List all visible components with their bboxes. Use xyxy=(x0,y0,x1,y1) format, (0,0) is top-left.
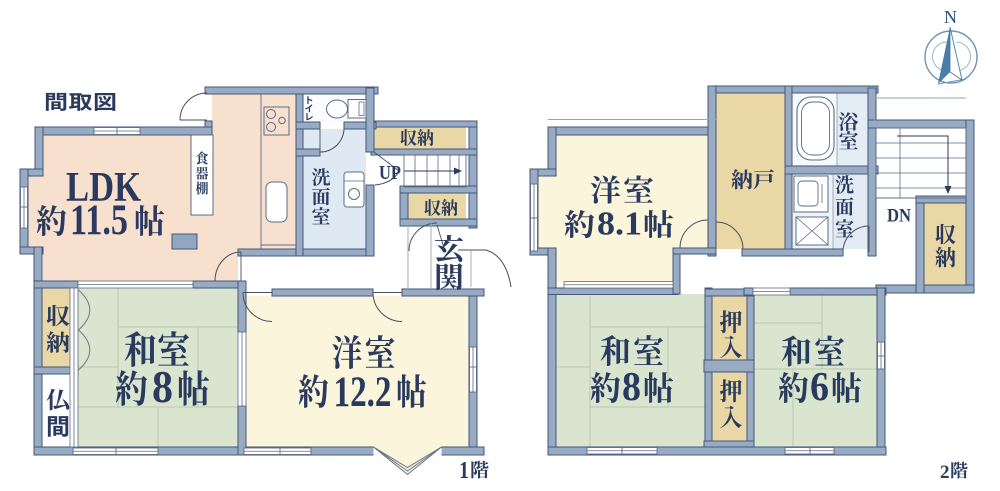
svg-text:N: N xyxy=(944,7,957,27)
svg-text:8: 8 xyxy=(622,363,641,409)
svg-text:12.2: 12.2 xyxy=(334,369,392,416)
svg-text:1: 1 xyxy=(459,458,469,484)
svg-text:8.1: 8.1 xyxy=(597,206,642,243)
svg-text:UP: UP xyxy=(379,162,401,184)
svg-text:6: 6 xyxy=(810,363,829,409)
svg-text:2: 2 xyxy=(940,462,950,483)
svg-text:11.5: 11.5 xyxy=(70,197,128,244)
svg-text:DN: DN xyxy=(887,206,911,227)
svg-text:8: 8 xyxy=(152,361,173,412)
